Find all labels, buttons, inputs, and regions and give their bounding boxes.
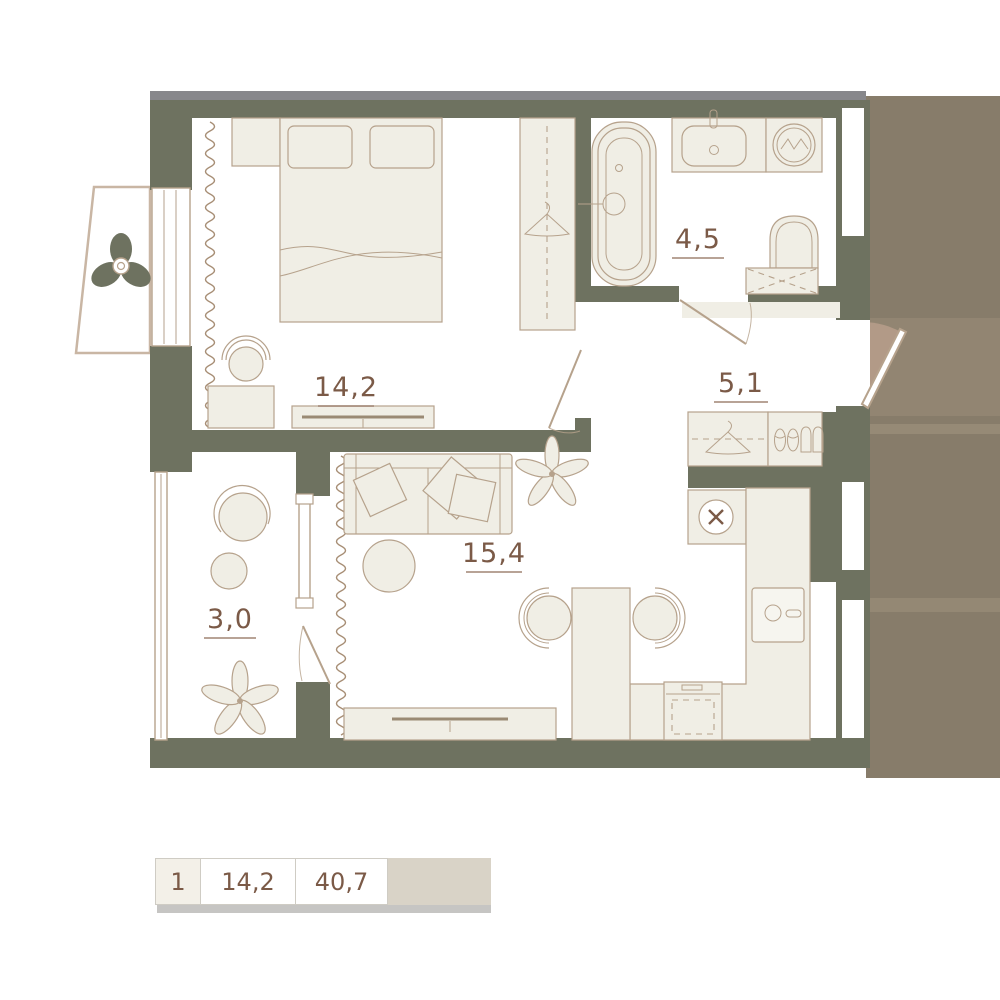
chair-seat bbox=[229, 347, 263, 381]
pillow bbox=[370, 126, 434, 168]
legend-total-area: 40,7 bbox=[295, 858, 388, 905]
living-tv-stand bbox=[344, 708, 556, 740]
bedroom-tv-stand bbox=[292, 406, 434, 428]
coffee-table bbox=[363, 540, 415, 592]
svg-text:15,4: 15,4 bbox=[462, 538, 526, 569]
top-shadow-bar bbox=[150, 91, 866, 101]
room-label-living: 15,4 bbox=[462, 538, 526, 572]
stove bbox=[688, 490, 746, 544]
bedroom-window bbox=[152, 188, 190, 346]
dining-table bbox=[572, 588, 630, 740]
pillow bbox=[288, 126, 352, 168]
legend-tail bbox=[388, 858, 491, 905]
room-label-balcony: 3,0 bbox=[204, 604, 256, 638]
bedroom-wardrobe bbox=[520, 118, 575, 330]
bathroom-sink bbox=[672, 110, 766, 172]
corridor-zone bbox=[866, 96, 1000, 778]
kitchen-sink bbox=[752, 588, 804, 642]
floor-plan-page: 14,2 4,5 5,1 15,4 3,0 1 14,2 40,7 bbox=[0, 0, 1000, 1000]
balcony-glazing bbox=[155, 472, 167, 740]
sofa bbox=[344, 454, 512, 534]
bedroom-cabinet bbox=[232, 118, 280, 166]
legend-rooms-count: 1 bbox=[155, 858, 201, 905]
ac-basket bbox=[76, 187, 155, 353]
hall-wardrobe bbox=[688, 412, 768, 466]
dining-chair bbox=[527, 596, 571, 640]
sofa-pillow bbox=[448, 474, 495, 521]
shoe-cabinet bbox=[768, 412, 823, 466]
room-label-bedroom: 14,2 bbox=[314, 372, 378, 406]
refrigerator bbox=[664, 682, 722, 740]
svg-text:5,1: 5,1 bbox=[718, 368, 764, 399]
svg-text:4,5: 4,5 bbox=[675, 224, 721, 255]
double-bed bbox=[280, 118, 442, 322]
legend-shadow bbox=[157, 905, 491, 913]
balcony-partition-window bbox=[296, 494, 313, 608]
room-label-bathroom: 4,5 bbox=[672, 224, 724, 258]
desk bbox=[208, 386, 274, 428]
threshold bbox=[682, 302, 840, 318]
svg-text:3,0: 3,0 bbox=[207, 604, 253, 635]
room-label-hallway: 5,1 bbox=[714, 368, 768, 402]
floor-plan-svg: 14,2 4,5 5,1 15,4 3,0 bbox=[0, 0, 1000, 1000]
apartment-legend-row[interactable]: 1 14,2 40,7 bbox=[155, 858, 491, 905]
balcony-table bbox=[211, 553, 247, 589]
washing-machine bbox=[766, 118, 822, 172]
svg-text:14,2: 14,2 bbox=[314, 372, 378, 403]
legend-living-area: 14,2 bbox=[200, 858, 296, 905]
dining-chair bbox=[633, 596, 677, 640]
